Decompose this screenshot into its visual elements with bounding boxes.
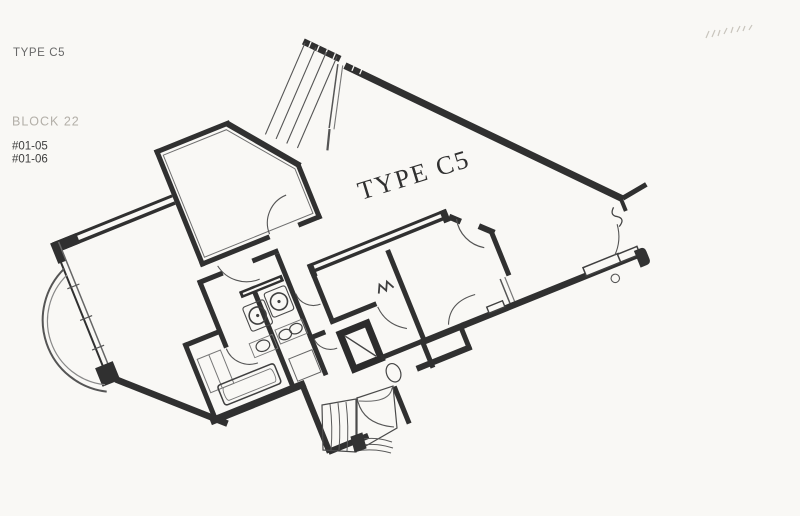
svg-text:#01-05: #01-05 [12,141,48,153]
svg-text:TYPE C5: TYPE C5 [13,47,65,59]
svg-text:#01-06: #01-06 [12,154,48,166]
svg-text:BLOCK 22: BLOCK 22 [12,115,80,129]
